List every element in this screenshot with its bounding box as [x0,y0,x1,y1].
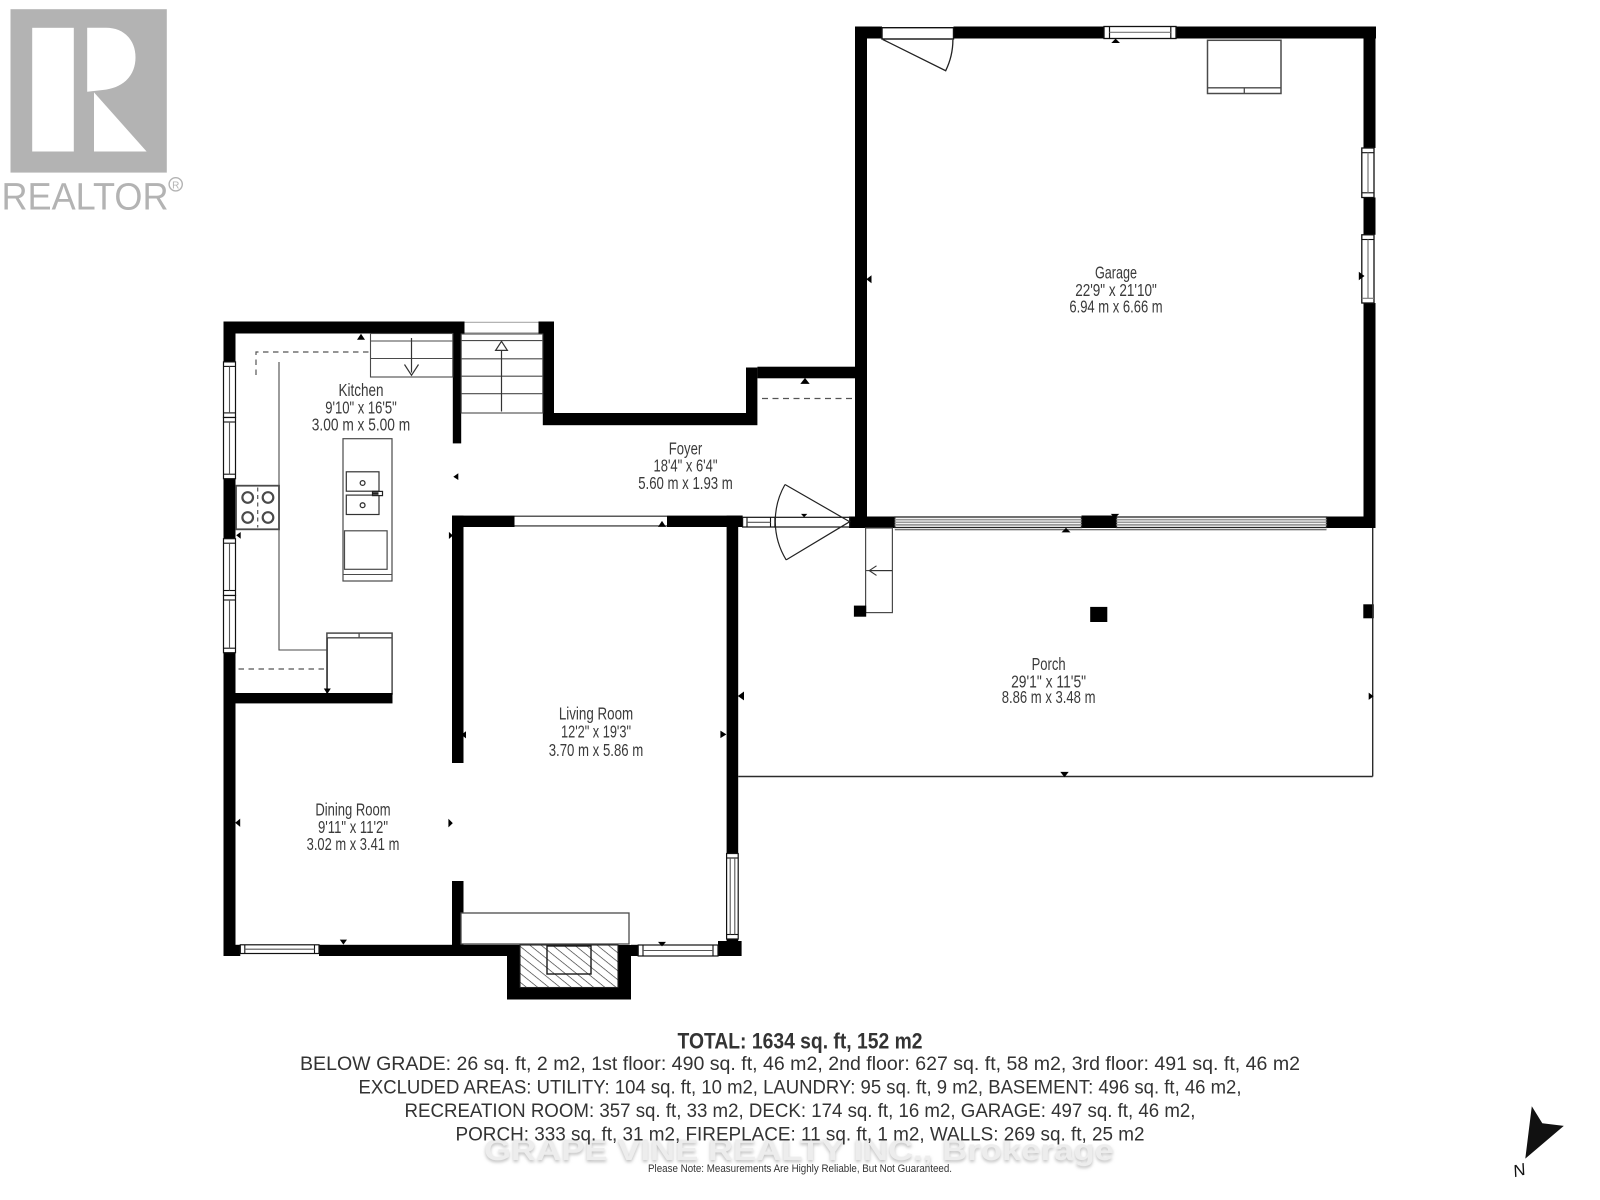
svg-text:EXCLUDED AREAS: UTILITY: 104 s: EXCLUDED AREAS: UTILITY: 104 sq. ft, 10 … [359,1076,1242,1098]
svg-text:R: R [172,180,179,191]
svg-text:REALTOR: REALTOR [2,177,169,219]
svg-text:Please Note: Measurements Are: Please Note: Measurements Are Highly Rel… [648,1163,952,1175]
svg-text:TOTAL: 1634 sq. ft, 152 m2: TOTAL: 1634 sq. ft, 152 m2 [678,1029,923,1054]
svg-text:6.94 m x 6.66 m: 6.94 m x 6.66 m [1069,296,1162,316]
svg-text:N: N [1511,1160,1528,1182]
svg-text:5.60 m x 1.93 m: 5.60 m x 1.93 m [638,473,733,493]
svg-text:PORCH: 333 sq. ft, 31 m2, FIRE: PORCH: 333 sq. ft, 31 m2, FIREPLACE: 11 … [456,1123,1145,1145]
svg-text:3.70 m x 5.86 m: 3.70 m x 5.86 m [549,740,644,760]
svg-text:RECREATION ROOM: 357 sq. ft, 3: RECREATION ROOM: 357 sq. ft, 33 m2, DECK… [405,1100,1196,1122]
svg-text:8.86 m x 3.48 m: 8.86 m x 3.48 m [1002,687,1096,707]
svg-text:Living Room: Living Room [559,704,633,724]
svg-text:12'2" x 19'3": 12'2" x 19'3" [561,722,631,742]
svg-text:3.02 m x 3.41 m: 3.02 m x 3.41 m [307,834,400,854]
svg-text:BELOW GRADE: 26 sq. ft, 2 m2,: BELOW GRADE: 26 sq. ft, 2 m2, 1st floor:… [300,1053,1300,1075]
svg-text:3.00 m x 5.00 m: 3.00 m x 5.00 m [312,414,410,434]
